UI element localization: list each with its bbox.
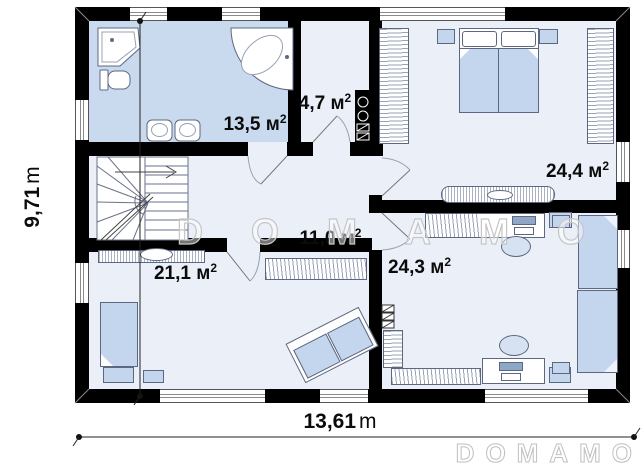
wall-segment [616, 182, 630, 230]
duvet [460, 48, 538, 112]
wall-segment [505, 7, 630, 21]
dresser-decor [487, 190, 513, 200]
pillow [462, 31, 497, 47]
blanket-fold [101, 354, 113, 366]
single-bed [100, 302, 138, 367]
floor-plan: 13,5 м2 4,7 м2 24,4 м2 11,0 м2 21,1 м2 2… [0, 0, 643, 470]
blanket-fold [604, 359, 617, 372]
desk-chair [499, 335, 529, 356]
window [320, 389, 368, 403]
desk [482, 358, 545, 384]
dresser [441, 186, 555, 203]
window [380, 7, 505, 21]
wall-segment [89, 142, 248, 156]
nightstand [103, 367, 134, 383]
window [160, 389, 265, 403]
nightstand [552, 215, 570, 228]
wall-segment [75, 389, 160, 403]
nightstand [539, 29, 558, 44]
width-dimension-label: 13,61m [280, 410, 400, 434]
window [222, 7, 260, 21]
wall-segment [75, 140, 89, 263]
blanket-fold [604, 216, 617, 229]
wall-segment [368, 389, 485, 403]
wardrobe [587, 28, 614, 144]
double-bed [459, 28, 539, 113]
wall-segment [260, 7, 380, 21]
keyboard [514, 227, 534, 235]
room-area-label-boiler-room: 4,7 м2 [285, 91, 365, 115]
wardrobe [383, 330, 403, 368]
desk [425, 213, 545, 238]
keyboard [501, 373, 521, 381]
room-area-label-room-lower-right: 24,3 м2 [377, 255, 462, 279]
nightstand [437, 29, 455, 44]
wall-segment [265, 389, 320, 403]
room-area-label-room-lower-left: 21,1 м2 [143, 261, 228, 285]
room-area-label-bathroom: 13,5 м2 [210, 112, 300, 136]
wardrobe [265, 258, 367, 280]
wall-segment [588, 389, 630, 403]
desk-chair [501, 236, 531, 257]
computer-monitor [512, 216, 536, 225]
room-area-label-hallway: 11,0 м2 [288, 226, 373, 250]
window [75, 100, 89, 140]
wardrobe [379, 28, 409, 144]
wall-segment [616, 7, 630, 142]
wall-segment [616, 268, 630, 403]
window [485, 389, 588, 403]
wall-segment [167, 7, 222, 21]
height-dimension-label: 9,71m [21, 142, 51, 252]
dresser-decor [140, 248, 173, 261]
single-bed [578, 215, 618, 289]
wall-segment [75, 7, 89, 100]
window [616, 230, 630, 268]
wardrobe [391, 368, 481, 385]
nightstand [552, 362, 570, 374]
wall-segment [75, 303, 89, 403]
watermark-corner: DOMAMO [456, 438, 643, 469]
single-bed [577, 290, 618, 373]
pillow [501, 31, 536, 47]
window [130, 7, 167, 21]
computer-monitor [499, 362, 523, 371]
wall-segment [369, 195, 382, 213]
side-table [143, 370, 164, 383]
window [75, 263, 89, 303]
room-area-label-bedroom: 24,4 м2 [535, 159, 620, 183]
